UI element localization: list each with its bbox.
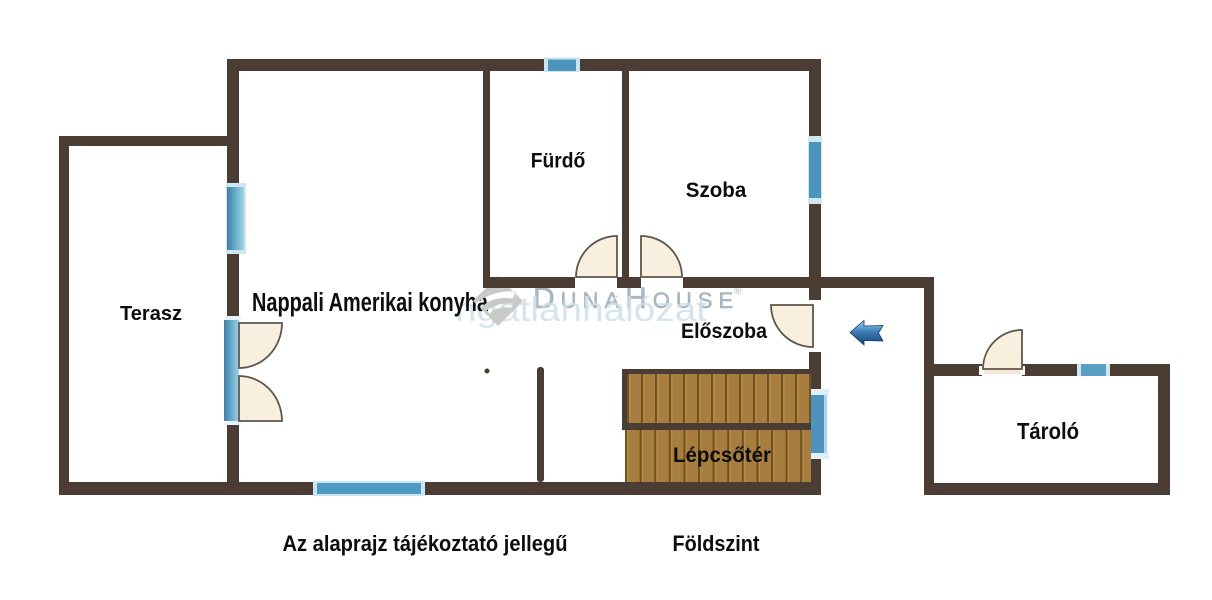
svg-text:Földszint: Földszint <box>673 531 761 556</box>
svg-text:Szoba: Szoba <box>686 179 747 202</box>
svg-text:Lépcsőtér: Lépcsőtér <box>673 443 772 467</box>
svg-text:Terasz: Terasz <box>120 302 182 325</box>
svg-text:ngatlanhálózat: ngatlanhálózat <box>455 291 708 329</box>
svg-text:Nappali Amerikai konyha: Nappali Amerikai konyha <box>252 289 489 317</box>
svg-text:Fürdő: Fürdő <box>531 149 586 173</box>
svg-text:Tároló: Tároló <box>1017 418 1079 444</box>
svg-text:Előszoba: Előszoba <box>681 319 768 343</box>
svg-text:Az alaprajz tájékoztató jelleg: Az alaprajz tájékoztató jellegű <box>283 531 568 556</box>
